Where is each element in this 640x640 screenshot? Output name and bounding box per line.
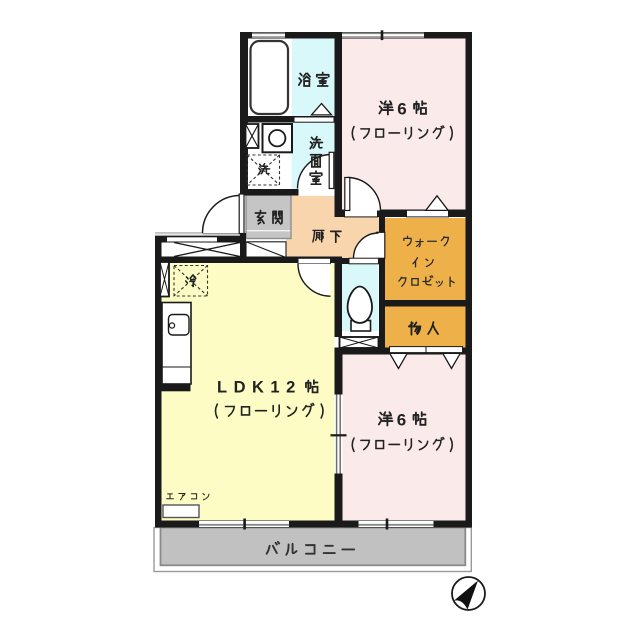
svg-text:6: 6: [397, 100, 406, 119]
svg-text:6: 6: [397, 411, 406, 430]
svg-text:LDK12: LDK12: [217, 379, 302, 397]
